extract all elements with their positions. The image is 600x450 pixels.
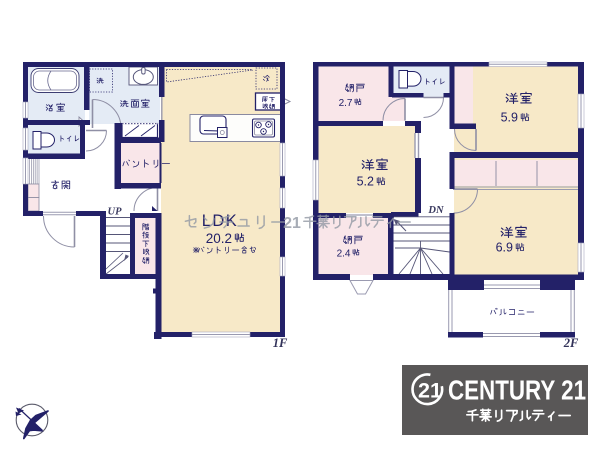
svg-text:2F: 2F (563, 336, 579, 350)
svg-text:DN: DN (427, 205, 444, 216)
svg-text:2.4: 2.4 (337, 249, 351, 260)
svg-text:CENTURY 21: CENTURY 21 (448, 375, 586, 406)
svg-text:20.2: 20.2 (206, 231, 232, 246)
svg-text:21: 21 (283, 215, 301, 232)
svg-text:UP: UP (108, 207, 123, 218)
svg-text:21: 21 (418, 379, 442, 403)
svg-text:5.2: 5.2 (357, 175, 374, 189)
svg-text:6.9: 6.9 (496, 241, 513, 255)
svg-text:5.9: 5.9 (501, 111, 518, 125)
svg-text:2.7: 2.7 (339, 98, 353, 109)
svg-text:1F: 1F (273, 336, 288, 350)
